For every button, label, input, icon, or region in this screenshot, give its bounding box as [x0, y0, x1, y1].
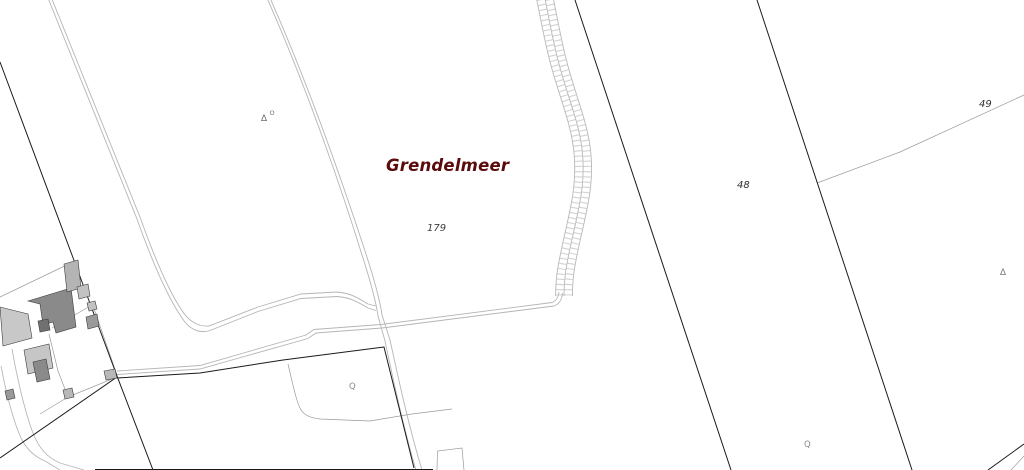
building-east-shed [86, 314, 99, 329]
parcel-number-179: 179 [427, 223, 446, 234]
building-main-dark [28, 288, 76, 333]
corner-black-line [988, 444, 1024, 470]
boundary-lower-left [0, 377, 117, 458]
building-north-annex [77, 284, 90, 299]
boundary-marker-triangle-icon: ∆ [260, 114, 268, 124]
boundary-mid-horizontal [117, 347, 414, 468]
boundary-marker-sup-icon: O [270, 109, 275, 117]
building-annex-dark [38, 319, 50, 332]
path-to-embankment [117, 292, 563, 375]
well-marker-icon: Q [349, 382, 356, 392]
cadastral-map: Grendelmeer 179 48 49 ∆ O ∆ Q Q [0, 0, 1024, 470]
place-label: Grendelmeer [386, 156, 510, 175]
map-canvas: Grendelmeer 179 48 49 ∆ O ∆ Q Q [0, 0, 1024, 470]
well-marker-icon: Q [804, 440, 811, 450]
parcel-number-49: 49 [979, 99, 992, 110]
strip-boundary-east [757, 0, 912, 470]
building-east-small [87, 301, 97, 311]
left-road [48, 0, 376, 332]
parcel-boundaries-black [0, 0, 1024, 470]
boundary-notch [437, 448, 464, 470]
embankment-rungs [540, 0, 587, 296]
parcel-number-48: 48 [737, 180, 750, 191]
building-barn-left [0, 307, 32, 346]
building-shed-west [5, 389, 15, 400]
building-shed-south [63, 388, 74, 399]
embankment-band [536, 0, 592, 296]
embankment-rails [536, 0, 592, 296]
boundary-to-49 [817, 95, 1024, 183]
yard-line-6 [40, 397, 68, 414]
center-road [267, 0, 422, 470]
boundary-q-parcel [288, 364, 452, 421]
corner-gray-line [1011, 456, 1024, 470]
strip-boundary-west [575, 0, 731, 470]
parcel-boundaries-gray [0, 95, 1024, 470]
building-shed-east [104, 369, 117, 380]
triangle-marker-icon: ∆ [999, 268, 1007, 278]
